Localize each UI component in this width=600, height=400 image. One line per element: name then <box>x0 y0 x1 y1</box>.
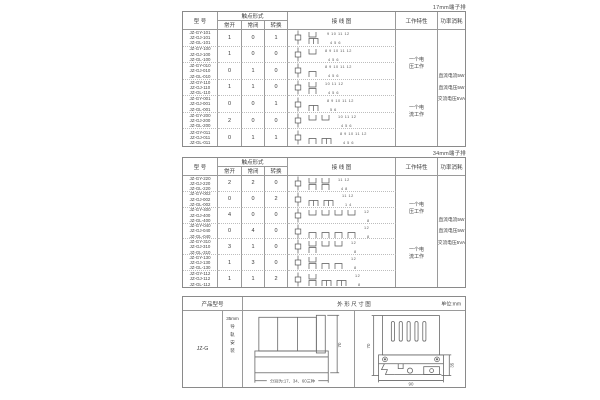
co-count: 0 <box>265 63 288 80</box>
wiring-diagram-svg: 8 9 10 11 124 5 6 <box>291 46 395 63</box>
mount-char-2: 轨 <box>230 333 235 338</box>
model-number: JZ-GL-112 <box>190 282 211 287</box>
power-consumption-line: 直流电压5W <box>439 85 465 91</box>
working-characteristic-cell: 一个电压工作一个电流工作 <box>396 30 438 146</box>
wiring-diagram-svg: 128 <box>291 254 395 271</box>
mount-type-cell: 35mm 导 轨 安 装 <box>223 311 243 387</box>
nc-count: 3 <box>242 255 265 271</box>
working-header: 工作特性 <box>396 158 438 176</box>
model-number: JZ-GL-200 <box>190 123 211 128</box>
unit-label: 单位:mm <box>441 300 461 307</box>
model-number: JZ-GL-130 <box>190 265 211 270</box>
no-count: 1 <box>218 255 242 271</box>
no-count: 0 <box>218 63 242 80</box>
wiring-diagram-cell: 11 124 8 <box>288 176 396 192</box>
svg-text:11 12: 11 12 <box>342 194 354 198</box>
svg-text:4 5 6: 4 5 6 <box>328 58 339 62</box>
svg-text:11 12: 11 12 <box>338 178 350 182</box>
svg-text:8 9 10 11 12: 8 9 10 11 12 <box>325 66 352 70</box>
nc-header: 常闭 <box>242 21 265 30</box>
co-count: 1 <box>265 129 288 146</box>
svg-text:5 6: 5 6 <box>330 108 337 112</box>
working-characteristic: 一个电压工作 <box>409 57 424 71</box>
model-cell: JZ-GY-130JZ-GJ-130JZ-GL-130 <box>183 255 218 271</box>
no-count: 1 <box>218 80 242 97</box>
co-count: 0 <box>265 224 288 240</box>
co-header: 转换 <box>265 21 288 30</box>
side-clip-dim: 35 <box>450 362 455 367</box>
working-characteristic: 一个电压工作 <box>409 202 424 216</box>
wiring-diagram-svg: 128 <box>291 271 395 288</box>
front-width-caption: 分别为:17、34、60三种 <box>270 377 315 384</box>
wiring-diagram-svg: 128 <box>291 207 395 224</box>
power-header: 功率消耗 <box>438 158 465 176</box>
no-count: 0 <box>218 129 242 146</box>
model-cell: JZ-GY-010JZ-GJ-010JZ-GL-010 <box>183 63 218 80</box>
wiring-diagram-cell: 128 <box>288 208 396 224</box>
svg-text:12: 12 <box>351 242 356 246</box>
model-number: JZ-GL-011 <box>190 140 211 145</box>
wiring-diagram-svg: 8 9 10 11 125 6 <box>291 96 395 113</box>
nc-count: 1 <box>242 129 265 146</box>
no-count: 0 <box>218 224 242 240</box>
model-number: JZ-GL-100 <box>190 57 211 62</box>
svg-text:10 11 12: 10 11 12 <box>338 115 357 119</box>
side-view-svg: 70 90 35 <box>355 310 465 388</box>
model-number: JZ-GL-001 <box>190 107 211 112</box>
power-header: 功率消耗 <box>438 12 465 30</box>
svg-text:12: 12 <box>351 257 356 261</box>
nc-count: 0 <box>242 47 265 64</box>
front-height-dim: 70 <box>337 342 342 347</box>
wiring-diagram-svg: 10 11 124 5 6 <box>291 79 395 96</box>
nc-count: 0 <box>242 208 265 224</box>
co-count: 0 <box>265 113 288 130</box>
co-count: 0 <box>265 47 288 64</box>
svg-text:8 9 10 11 12: 8 9 10 11 12 <box>340 132 367 136</box>
no-count: 2 <box>218 176 242 192</box>
mount-char-4: 装 <box>230 349 235 354</box>
wiring-diagram-cell: 11 121 4 <box>288 192 396 208</box>
no-count: 2 <box>218 113 242 130</box>
model-cell: JZ-GY-400JZ-GJ-400JZ-GL-400 <box>183 208 218 224</box>
svg-text:9 10 11 12: 9 10 11 12 <box>327 32 350 36</box>
nc-header: 常闭 <box>242 167 265 176</box>
co-count: 0 <box>265 176 288 192</box>
mount-char-1: 导 <box>230 325 235 330</box>
svg-text:10 11 12: 10 11 12 <box>325 82 344 86</box>
model-cell: JZ-GY-310JZ-GJ-310JZ-GL-310 <box>183 239 218 255</box>
no-count: 0 <box>218 96 242 113</box>
wiring-diagram-svg: 9 10 11 124 5 6 <box>291 29 395 46</box>
front-view-drawing: 70 分别为:17、34、60三种 <box>243 311 355 387</box>
dimension-header-label: 外 形 尺 寸 图 <box>337 300 371 308</box>
front-view-svg: 70 分别为:17、34、60三种 <box>243 310 354 388</box>
spec-table-34mm: 型 号触点形式常开常闭转换接 线 图工作特性功率消耗JZ-GY-220JZ-GJ… <box>182 157 466 288</box>
wiring-diagram-svg: 11 121 4 <box>291 191 395 208</box>
no-count: 0 <box>218 192 242 208</box>
svg-text:4 5 6: 4 5 6 <box>341 124 352 128</box>
working-header: 工作特性 <box>396 12 438 30</box>
contact-form-header: 触点形式 <box>218 12 288 21</box>
no-count: 1 <box>218 271 242 287</box>
wiring-diagram-cell: 8 9 10 11 125 6 <box>288 96 396 113</box>
wiring-header: 接 线 图 <box>288 12 396 30</box>
power-consumption-line: 直流电压5W <box>439 228 465 234</box>
model-cell: JZ-GY-040JZ-GJ-040JZ-GL-040 <box>183 224 218 240</box>
mount-char-3: 安 <box>230 341 235 346</box>
wiring-diagram-cell: 10 11 124 5 6 <box>288 113 396 130</box>
model-cell: JZ-GY-110JZ-GJ-110JZ-GL-110 <box>183 80 218 97</box>
wiring-diagram-cell: 8 9 10 11 124 5 6 <box>288 129 396 146</box>
wiring-diagram-cell: 128 <box>288 255 396 271</box>
power-consumption-line: 直流电流5W <box>439 73 465 79</box>
power-consumption-cell: 直流电流5W直流电压5W交流电压5VA <box>438 176 465 287</box>
model-cell: JZ-GY-011JZ-GJ-011JZ-GL-011 <box>183 129 218 146</box>
model-number: JZ-GL-010 <box>190 74 211 79</box>
co-count: 1 <box>265 96 288 113</box>
svg-text:8 9 10 11 12: 8 9 10 11 12 <box>325 49 352 53</box>
wiring-diagram-svg: 8 9 10 11 124 5 6 <box>291 129 395 146</box>
side-width-dim: 90 <box>409 381 414 386</box>
nc-count: 0 <box>242 192 265 208</box>
svg-text:12: 12 <box>355 274 360 278</box>
spec-table-17mm: 型 号触点形式常开常闭转换接 线 图工作特性功率消耗JZ-GY-101JZ-GJ… <box>182 11 466 147</box>
wiring-diagram-cell: 9 10 11 124 5 6 <box>288 30 396 47</box>
no-count: 1 <box>218 47 242 64</box>
svg-text:12: 12 <box>364 226 369 230</box>
outline-dimension-table: 产品型号 外 形 尺 寸 图 单位:mm JZ-G 35mm 导 轨 安 装 <box>182 296 466 388</box>
no-header: 常开 <box>218 21 242 30</box>
model-cell: JZ-GY-001JZ-GJ-001JZ-GL-001 <box>183 96 218 113</box>
co-count: 2 <box>265 271 288 287</box>
nc-count: 1 <box>242 63 265 80</box>
svg-text:4 5 6: 4 5 6 <box>330 41 341 45</box>
co-count: 0 <box>265 255 288 271</box>
model-header: 型 号 <box>183 12 218 30</box>
wiring-diagram-cell: 128 <box>288 239 396 255</box>
wiring-diagram-cell: 10 11 124 5 6 <box>288 80 396 97</box>
nc-count: 0 <box>242 96 265 113</box>
co-count: 0 <box>265 208 288 224</box>
model-cell: JZ-GY-100JZ-GJ-100JZ-GL-100 <box>183 47 218 64</box>
wiring-diagram-svg: 128 <box>291 223 395 240</box>
wiring-diagram-cell: 128 <box>288 224 396 240</box>
catalog-page: 17mm端子排 型 号触点形式常开常闭转换接 线 图工作特性功率消耗JZ-GY-… <box>0 0 600 400</box>
svg-text:4 5 6: 4 5 6 <box>328 91 339 95</box>
co-count: 0 <box>265 239 288 255</box>
dimension-drawing-header: 外 形 尺 寸 图 单位:mm <box>243 297 465 311</box>
model-number: JZ-GL-101 <box>190 40 211 45</box>
power-consumption-cell: 直流电流5W直流电压5W交流电压5VA <box>438 30 465 146</box>
wiring-diagram-cell: 128 <box>288 271 396 287</box>
wiring-diagram-svg: 128 <box>291 238 395 255</box>
side-height-dim: 70 <box>366 343 371 348</box>
svg-text:8 9 10 11 12: 8 9 10 11 12 <box>327 99 354 103</box>
model-header: 型 号 <box>183 158 218 176</box>
no-count: 1 <box>218 30 242 47</box>
svg-text:8: 8 <box>358 283 361 287</box>
wiring-diagram-svg: 11 124 8 <box>291 175 395 192</box>
no-header: 常开 <box>218 167 242 176</box>
svg-text:4 5 6: 4 5 6 <box>343 141 354 145</box>
nc-count: 2 <box>242 176 265 192</box>
wiring-diagram-cell: 8 9 10 11 124 5 6 <box>288 63 396 80</box>
model-cell: JZ-GY-220JZ-GJ-220JZ-GL-220 <box>183 176 218 192</box>
mount-size: 35mm <box>226 317 239 322</box>
model-cell: JZ-GY-112JZ-GJ-112JZ-GL-112 <box>183 271 218 287</box>
svg-text:4 5 6: 4 5 6 <box>328 74 339 78</box>
nc-count: 0 <box>242 30 265 47</box>
model-cell: JZ-GY-101JZ-GJ-101JZ-GL-101 <box>183 30 218 47</box>
model-cell: JZ-GY-200JZ-GJ-200JZ-GL-200 <box>183 113 218 130</box>
terminal-note-17mm: 17mm端子排 <box>182 3 466 11</box>
model-cell: JZ-GY-002JZ-GJ-002JZ-GL-002 <box>183 192 218 208</box>
co-count: 2 <box>265 192 288 208</box>
working-characteristic: 一个电流工作 <box>409 105 424 119</box>
nc-count: 4 <box>242 224 265 240</box>
product-model-header: 产品型号 <box>183 297 243 311</box>
nc-count: 1 <box>242 80 265 97</box>
working-characteristic: 一个电流工作 <box>409 247 424 261</box>
co-count: 0 <box>265 80 288 97</box>
wiring-diagram-cell: 8 9 10 11 124 5 6 <box>288 47 396 64</box>
product-model-value: JZ-G <box>183 311 223 387</box>
co-count: 1 <box>265 30 288 47</box>
working-characteristic-cell: 一个电压工作一个电流工作 <box>396 176 438 287</box>
wiring-diagram-svg: 10 11 124 5 6 <box>291 112 395 129</box>
svg-text:12: 12 <box>364 210 369 214</box>
wiring-diagram-svg: 8 9 10 11 124 5 6 <box>291 62 395 79</box>
terminal-note-34mm: 34mm端子排 <box>182 149 466 157</box>
nc-count: 1 <box>242 271 265 287</box>
no-count: 4 <box>218 208 242 224</box>
wiring-header: 接 线 图 <box>288 158 396 176</box>
co-header: 转换 <box>265 167 288 176</box>
power-consumption-line: 交流电压5VA <box>438 96 465 102</box>
nc-count: 0 <box>242 113 265 130</box>
no-count: 3 <box>218 239 242 255</box>
contact-form-header: 触点形式 <box>218 158 288 167</box>
model-number: JZ-GL-110 <box>190 90 211 95</box>
side-view-drawing: 70 90 35 <box>355 311 465 387</box>
nc-count: 1 <box>242 239 265 255</box>
power-consumption-line: 交流电压5VA <box>438 240 465 246</box>
power-consumption-line: 直流电流5W <box>439 217 465 223</box>
